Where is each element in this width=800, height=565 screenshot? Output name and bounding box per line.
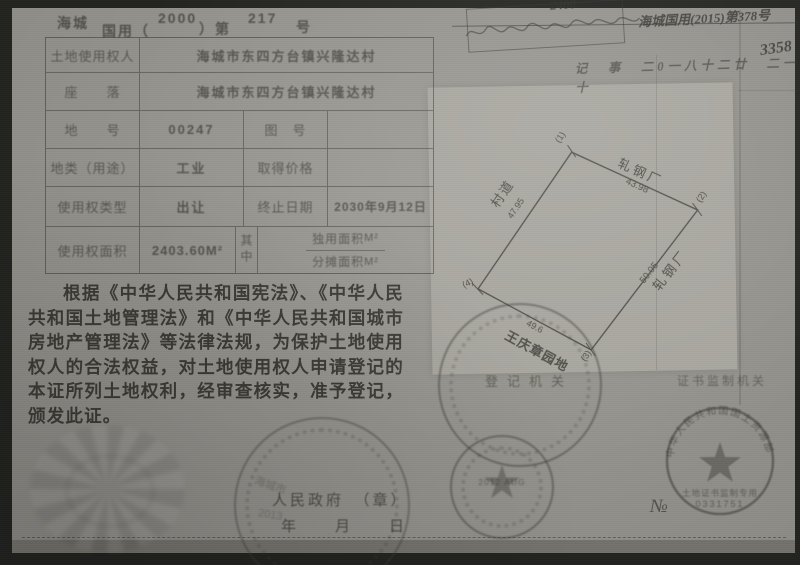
value-end-date: 2030年9月12日	[334, 198, 427, 215]
embossed-rosette-center	[66, 455, 154, 527]
table-row: 使用权面积 2403.60M² 其中 独用面积 M² 分摊面积 M²	[46, 227, 433, 273]
scribble-stroke	[466, 16, 640, 36]
fold-crease	[656, 55, 657, 370]
unit-shared-area: M²	[364, 256, 379, 268]
table-row: 使用权类型 出让 终止日期 2030年9月12日	[46, 187, 433, 227]
label-exclusive-area: 独用面积	[312, 230, 364, 247]
stamp-ring	[449, 314, 591, 456]
edge-left-length: 47.95	[505, 196, 526, 220]
handwritten-note-line: 记 事 二0一八十二廿 二一十	[575, 52, 800, 96]
cert-region: 海城	[57, 13, 89, 33]
label-price: 取得价格	[257, 158, 313, 177]
cert-year: 2000	[158, 10, 197, 26]
corner-label-2: (2)	[694, 189, 708, 204]
date-stamp: ★ 2012 AUG	[450, 435, 554, 539]
label-end-date: 终止日期	[257, 197, 313, 216]
numero-symbol: №	[650, 496, 668, 518]
stamp-ring	[245, 428, 399, 565]
label-location: 座 落	[64, 82, 120, 101]
label-land-user: 土地使用权人	[50, 46, 134, 65]
ministry-supervision-stamp: 中华人民共和国国土资源部 土地证书监制专用 0331751	[663, 404, 777, 518]
sub-row-exclusive-area: 独用面积 M²	[306, 227, 385, 251]
label-area: 使用权面积	[57, 241, 127, 260]
label-map-no: 图 号	[264, 120, 306, 139]
table-row: 座 落 海城市东四方台镇兴隆达村	[46, 73, 433, 111]
corner-label-1: (1)	[553, 130, 567, 145]
value-area: 2403.60M²	[152, 243, 223, 258]
certificate-table: 土地使用权人 海城市东四方台镇兴隆达村 座 落 海城市东四方台镇兴隆达村 地 号…	[45, 37, 434, 274]
scanned-land-certificate: 海城 国用（ 2000 ）第 217 号 土地使用权人 海城市东四方台镇兴隆达村…	[0, 0, 800, 565]
star-icon	[699, 442, 741, 482]
value-land-user: 海城市东四方台镇兴隆达村	[196, 46, 376, 65]
value-location: 海城市东四方台镇兴隆达村	[196, 82, 376, 101]
value-plot-no: 00247	[168, 122, 214, 137]
label-right-type: 使用权类型	[57, 197, 127, 216]
cert-serial: 217	[248, 10, 277, 26]
supervision-authority-label: 证书监制机关	[677, 372, 767, 389]
table-row: 地类（用途） 工业 取得价格	[46, 149, 433, 187]
table-row: 土地使用权人 海城市东四方台镇兴隆达村	[46, 38, 433, 73]
sub-row-shared-area: 分摊面积 M²	[306, 251, 385, 274]
label-shared-area: 分摊面积	[312, 253, 364, 270]
label-of-which: 其中	[238, 234, 255, 266]
cert-mid-label: ）第	[199, 19, 231, 39]
stamp-serial-number: 0331751	[695, 499, 744, 509]
stamp-inner-text: 土地证书监制专用	[682, 488, 758, 498]
unit-exclusive-area: M²	[364, 232, 379, 244]
table-row: 地 号 00247 图 号	[46, 111, 433, 149]
legal-text: 根据《中华人民共和国宪法》、《中华人民共和国土地管理法》和《中华人民共和国城市房…	[28, 281, 404, 428]
label-land-class: 地类（用途）	[50, 158, 134, 177]
value-land-class: 工业	[176, 158, 206, 177]
value-right-type: 出让	[176, 197, 206, 216]
label-plot-no: 地 号	[64, 120, 120, 139]
corner-label-4: (4)	[461, 276, 475, 290]
stamp-date-text: 2012 AUG	[452, 477, 552, 487]
cert-suffix: 号	[296, 17, 312, 37]
